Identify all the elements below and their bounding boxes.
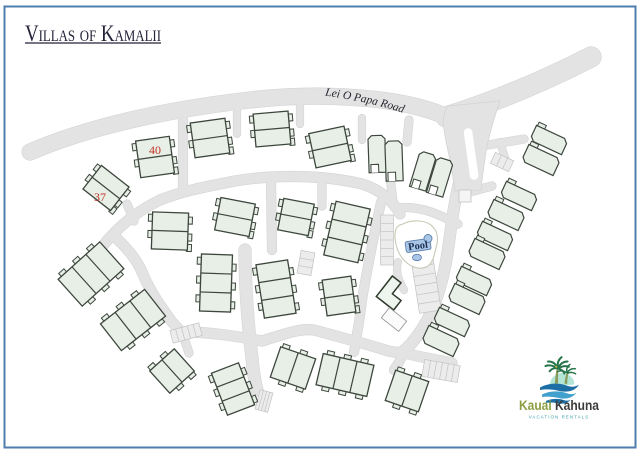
svg-text:Kauai Kahuna: Kauai Kahuna [519, 397, 599, 413]
svg-text:37: 37 [94, 190, 106, 204]
svg-text:VACATION RENTALS: VACATION RENTALS [529, 415, 590, 420]
svg-text:40: 40 [149, 143, 161, 157]
